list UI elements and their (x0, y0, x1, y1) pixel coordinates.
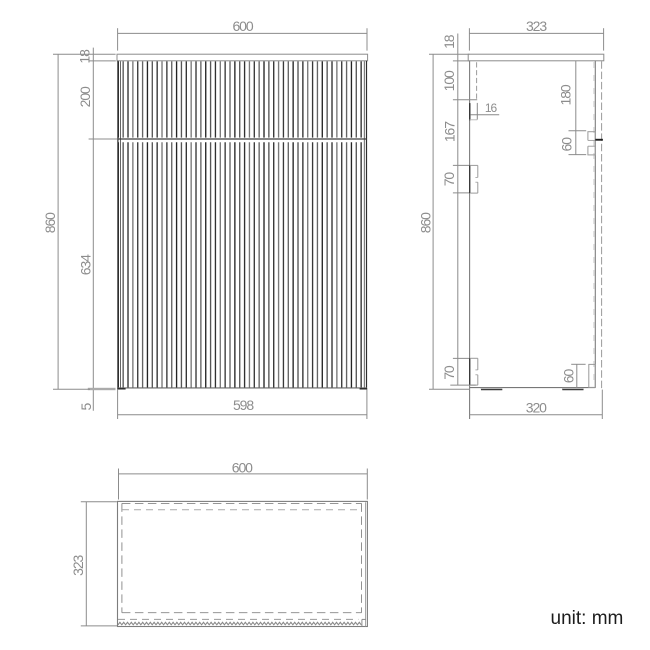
svg-text:634: 634 (77, 254, 93, 275)
svg-text:860: 860 (418, 212, 434, 233)
svg-text:323: 323 (526, 18, 547, 34)
svg-text:200: 200 (77, 86, 93, 107)
svg-text:100: 100 (441, 70, 457, 91)
svg-text:60: 60 (560, 369, 576, 384)
svg-text:70: 70 (441, 365, 457, 380)
svg-text:600: 600 (232, 459, 253, 475)
svg-text:320: 320 (526, 400, 547, 416)
svg-text:860: 860 (42, 212, 58, 233)
svg-text:60: 60 (558, 137, 574, 152)
svg-text:600: 600 (232, 18, 253, 34)
svg-text:167: 167 (441, 121, 457, 142)
svg-text:70: 70 (441, 172, 457, 187)
svg-text:598: 598 (233, 397, 254, 413)
svg-text:unit: mm: unit: mm (551, 608, 624, 629)
svg-text:323: 323 (70, 554, 86, 575)
svg-text:18: 18 (77, 49, 93, 64)
svg-text:180: 180 (557, 84, 573, 105)
svg-text:16: 16 (485, 101, 498, 115)
svg-text:18: 18 (441, 34, 457, 49)
